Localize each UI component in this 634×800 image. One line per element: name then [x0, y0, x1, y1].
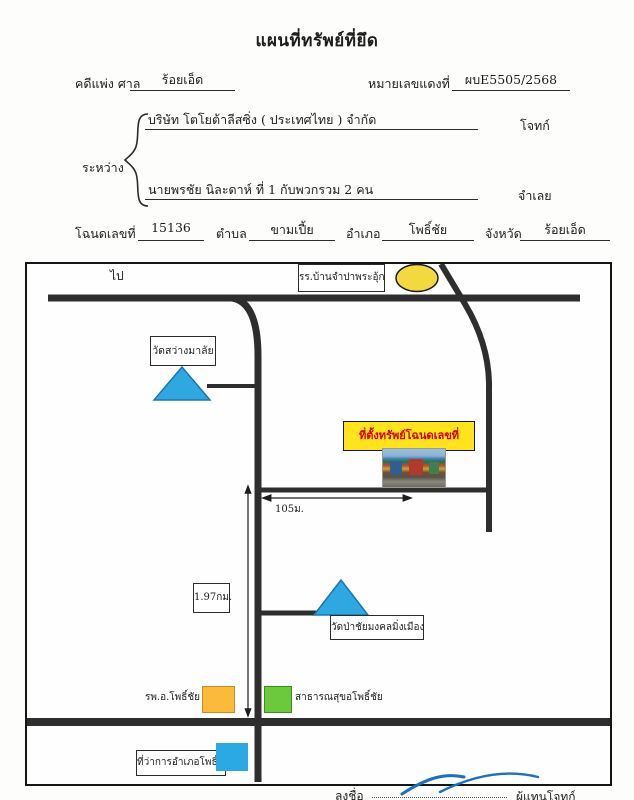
map-roads [27, 264, 610, 784]
school-ellipse [396, 265, 438, 292]
page-title: แผนที่ทรัพย์ที่ยึด [0, 27, 634, 54]
school-label: รร.บ้านจำปาพระอุ้ก [298, 264, 385, 292]
hospital-rect [202, 686, 235, 713]
subdistrict-label: ตำบล [216, 224, 247, 244]
property-location-box: ที่ตั้งทรัพย์โฉนดเลขที่ 15136 [343, 421, 475, 451]
photo-detail-blue [390, 461, 402, 475]
document-page: แผนที่ทรัพย์ที่ยึด คดีแพ่ง ศาล ร้อยเอ็ด … [0, 0, 634, 800]
district-value: โพธิ์ชัย [382, 220, 474, 241]
deed-label: โฉนดเลขที่ [75, 224, 136, 244]
between-brace [122, 112, 150, 208]
district-office-rect [216, 743, 248, 771]
plaintiff-underline [145, 129, 478, 130]
road-main-vertical [232, 298, 258, 782]
health-office-rect [264, 686, 292, 713]
plaintiff-name: บริษัท โตโยต้าลีสซิ่ง ( ประเทศไทย ) จำกั… [148, 110, 376, 130]
province-label: จังหวัด [485, 224, 522, 244]
health-office-label: สาธารณสุขอโพธิ์ชัย [295, 692, 383, 704]
plaintiff-role: โจทก์ [520, 116, 550, 136]
temple2-label: วัดป่าชัยมงคลมิ่งเมือง [330, 615, 424, 640]
signer-role-label: ผู้แทนโจทก์ [516, 788, 576, 800]
map-area: ไป รร.บ้านจำปาพระอุ้ก วัดสว่างมาลัย ที่ต… [25, 262, 612, 786]
property-photo [383, 449, 445, 487]
defendant-underline [145, 199, 478, 200]
direction-label: ไป [110, 270, 124, 284]
temple1-label: วัดสว่างมาลัย [150, 336, 216, 366]
province-value: ร้อยเอ็ด [520, 220, 610, 241]
temple1-triangle [154, 367, 210, 400]
hospital-label: รพ.อ.โพธิ์ชัย [140, 692, 200, 704]
court-value: ร้อยเอ็ด [130, 70, 235, 91]
red-case-label: หมายเลขแดงที่ [368, 74, 450, 94]
sign-label: ลงชื่อ [335, 787, 364, 800]
photo-detail-red [409, 459, 423, 475]
subdistrict-value: ขามเปี้ย [249, 220, 335, 241]
defendant-name: นายพรชัย นิละดาห์ ที่ 1 กับพวกรวม 2 คน [148, 180, 373, 200]
photo-detail-green [429, 462, 439, 474]
distance-197km-label: 1.97กม. [193, 583, 230, 613]
red-case-number: ผบE5505/2568 [452, 70, 570, 91]
district-label: อำเภอ [346, 224, 381, 244]
deed-number: 15136 [138, 220, 204, 241]
temple2-triangle [314, 580, 368, 615]
defendant-role: จำเลย [518, 186, 552, 206]
district-office-label: ที่ว่าการอำเภอโพธิ์ชัย [136, 750, 226, 776]
distance-105m-label: 105ม. [275, 504, 304, 516]
between-label: ระหว่าง [82, 158, 124, 178]
